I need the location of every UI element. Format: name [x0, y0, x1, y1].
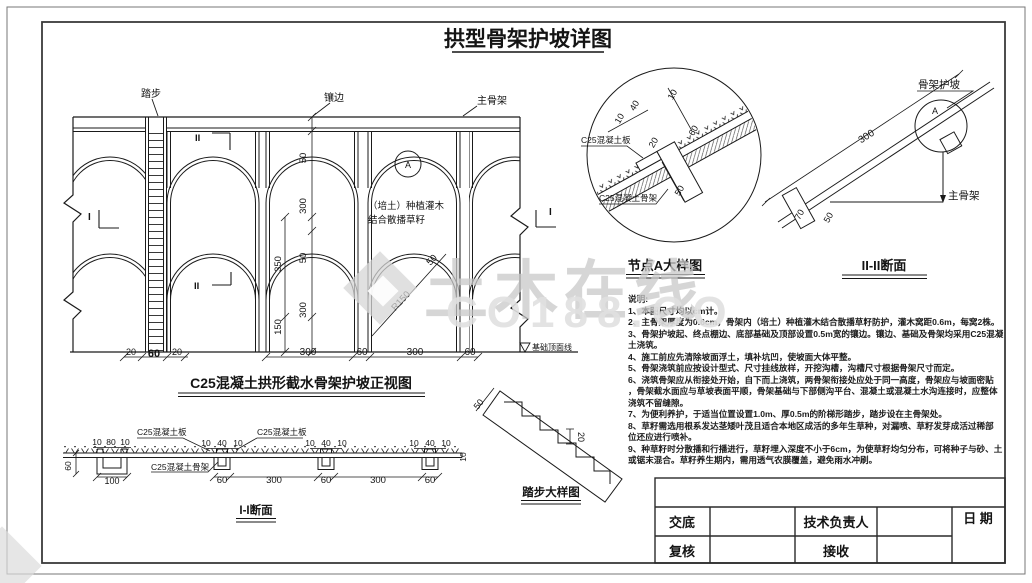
steps-leader [152, 99, 158, 116]
note-line: 1、本图尺寸均以cm计。 [628, 306, 1020, 318]
s11-caption: I-I断面 [239, 503, 273, 517]
s11-rib4-10: 10 [441, 438, 451, 448]
section-i-marker-right: I [549, 207, 552, 218]
page-title: 拱型骨架护坡详图 [444, 27, 612, 51]
node-dim-40: 40 [628, 99, 642, 113]
node-a-marker-label: A [405, 160, 411, 170]
s11-dim-80: 80 [106, 437, 116, 447]
dim-b-60a: 60 [356, 347, 368, 358]
main-rib-label: 主骨架 [477, 95, 507, 107]
dim-b-60b: 60 [464, 347, 476, 358]
s11-dim-10: 10 [92, 437, 102, 447]
s22-slope-label: 骨架护坡 [918, 78, 960, 91]
front-elevation: A （培土）种植灌木 结合散播草籽 踏步 镶边 主骨架 I I II II [64, 87, 578, 397]
s22-node-a-label: A [932, 106, 938, 116]
dim-b-20b: 20 [172, 347, 182, 357]
note-line: 9、种草籽时分散播和行播进行，草籽埋入深度不小于6cm，为使草籽均匀分布，可将种… [628, 444, 1020, 456]
s11-dim-300a: 300 [266, 475, 282, 486]
s22-main-label: 主骨架 [948, 190, 980, 202]
section-ii-ii: 300 70 50 A 骨架护坡 主骨架 II-II断面 [762, 70, 994, 279]
planting-note-line1: （培土）种植灌木 [368, 200, 445, 212]
dim-v-300b: 300 [298, 302, 309, 318]
note-line: 4、施工前应先清除坡面浮土，填补坑凹，使坡面大体平整。 [628, 352, 1020, 364]
note-line: 2、主骨架厚度为0.6cm，骨架内（培土）种植灌木结合散播草籽防护，灌木窝距0.… [628, 317, 1020, 329]
s11-rib2-10: 10 [201, 438, 211, 448]
section-ii-marker-bottom: II [194, 281, 199, 292]
node-detail-caption: 节点A大样图 [628, 258, 702, 273]
planting-note-line2: 结合散播草籽 [368, 214, 426, 226]
steps-dim-50: 50 [472, 397, 486, 411]
s11-frame-label: C25混凝土骨架 [151, 462, 210, 472]
note-line: 7、为便利养护，于适当位置设置1.0m、厚0.5m的阶梯形踏步，踏步设在主骨架处… [628, 409, 1020, 421]
s11-rib3-10: 10 [305, 438, 315, 448]
notes-block: 说明: 1、本图尺寸均以cm计。 2、主骨架厚度为0.6cm，骨架内（培土）种植… [628, 294, 1020, 467]
node-dim-10b: 10 [666, 88, 680, 102]
s11-slab-label-1: C25混凝土板 [137, 427, 187, 437]
titleblock-jiaodi-label: 交底 [669, 515, 695, 530]
main-rib-leader [463, 106, 477, 116]
dim-v-300a: 300 [298, 198, 309, 214]
note-line: 8、草籽需选用根系发达茎矮叶茂且适合本地区成活的多年生草种，对漏喷、草籽发芽成活… [628, 421, 1020, 433]
drawing-canvas: 拱型骨架护坡详图 A （培土）种植灌木 结合散播草籽 [0, 0, 1032, 583]
steps-label: 踏步 [141, 87, 161, 100]
edging-leader [313, 103, 330, 116]
dim-b-20a: 20 [126, 347, 136, 357]
titleblock-jieshou-label: 接收 [823, 544, 850, 559]
steps-caption: 踏步大样图 [522, 485, 580, 499]
s11-caption-underline [236, 519, 276, 523]
steps-profile [504, 402, 610, 484]
foundation-level-label: 基础顶面线 [532, 342, 572, 352]
note-line: 浇筑不留缝隙。 [628, 398, 1020, 410]
s11-dim-60v: 60 [63, 461, 73, 471]
title-block: 交底 复核 技术负责人 接收 日 期 [655, 478, 1005, 563]
dim-ring-50: 50 [425, 253, 440, 268]
dim-b-300b: 300 [407, 347, 424, 358]
note-line: ，骨架截水面应与草坡表面平顺，骨架基础与下部侧沟平台、混凝土或混凝土水沟连接时，… [628, 386, 1020, 398]
node-caption-underline [626, 275, 705, 279]
dim-v-50a: 50 [298, 153, 309, 164]
elevation-caption: C25混凝土拱形截水骨架护坡正视图 [190, 375, 412, 391]
s11-dim-10: 10 [120, 437, 130, 447]
section-ii-marker-top: II [195, 133, 200, 144]
s11-rib2-40: 40 [217, 438, 227, 448]
node-slab-label: C25混凝土板 [581, 135, 631, 145]
section-cut-lines [99, 133, 556, 285]
note-line: 位还应进行喷补。 [628, 432, 1020, 444]
foundation-level-symbol [520, 343, 530, 352]
steps-caption-underline [521, 501, 581, 505]
section-i-i: 10 80 10 10 40 10 10 40 10 10 40 10 60 1… [63, 427, 468, 522]
note-line: 6、浇筑骨架应从衔接处开始，自下而上浇筑，两骨架衔接处应处于同一高度，骨架应与坡… [628, 375, 1020, 387]
s22-caption-underline [842, 275, 927, 279]
dim-v-150: 150 [273, 319, 284, 335]
dim-r150: R150 [389, 289, 413, 313]
elevation-outline [64, 117, 578, 352]
edging-label: 镶边 [324, 91, 344, 104]
arch-modules [64, 132, 561, 353]
dim-b-300a: 300 [300, 347, 317, 358]
s11-slab-label-2: C25混凝土板 [257, 427, 307, 437]
note-line: 5、骨架浇筑前应按设计型式、尺寸挂线放样，开挖沟槽，沟槽尺寸根据骨架尺寸而定。 [628, 363, 1020, 375]
s11-dim-60b: 60 [321, 475, 332, 486]
node-a-detail: 10 40 10 20 60 50 C25混凝土板 C25混凝土骨架 节点A大样… [576, 68, 784, 278]
s11-rib2-10: 10 [233, 438, 243, 448]
stair-strip [146, 117, 167, 352]
dim-v-350: 350 [273, 256, 284, 272]
dim-b-60s: 60 [148, 348, 160, 360]
s11-dim-60a: 60 [217, 475, 228, 486]
note-line: 3、骨架护坡起、终点棚边、底部基础及顶部设置0.5m宽的镶边。镶边、基础及骨架均… [628, 329, 1020, 341]
notes-heading: 说明: [628, 294, 1020, 306]
dim-v-50b: 50 [298, 253, 309, 264]
s11-rib4-40: 40 [425, 438, 435, 448]
s11-rib4-10: 10 [409, 438, 419, 448]
elevation-caption-underline [178, 393, 425, 397]
s11-rib3-10: 10 [337, 438, 347, 448]
s11-dim-10v: 10 [458, 452, 468, 462]
titleblock-fuhe-label: 复核 [668, 544, 695, 559]
node-frame-label: C25混凝土骨架 [599, 193, 658, 203]
note-line: 或锯末混合。草籽养生期内，需用透气农膜覆盖，避免雨水冲刷。 [628, 455, 1020, 467]
elevation-dim-lines [120, 113, 482, 361]
note-line: 土浇筑。 [628, 340, 1020, 352]
s22-caption: II-II断面 [862, 258, 907, 273]
s11-dim-60c: 60 [425, 475, 436, 486]
node-dim-20: 20 [647, 136, 661, 150]
cad-drawing-sheet: 拱型骨架护坡详图 A （培土）种植灌木 结合散播草籽 [0, 0, 1032, 583]
s11-rib3-40: 40 [321, 438, 331, 448]
s22-dim-50: 50 [822, 211, 836, 225]
s11-dim-100: 100 [104, 476, 119, 486]
section-i-marker-left: I [88, 212, 91, 223]
steps-dim-20: 20 [576, 432, 586, 442]
steps-detail: 50 20 踏步大样图 [472, 388, 622, 504]
titleblock-date-label: 日 期 [963, 511, 993, 526]
s11-dim-300b: 300 [370, 475, 386, 486]
titleblock-tech-label: 技术负责人 [803, 515, 869, 530]
